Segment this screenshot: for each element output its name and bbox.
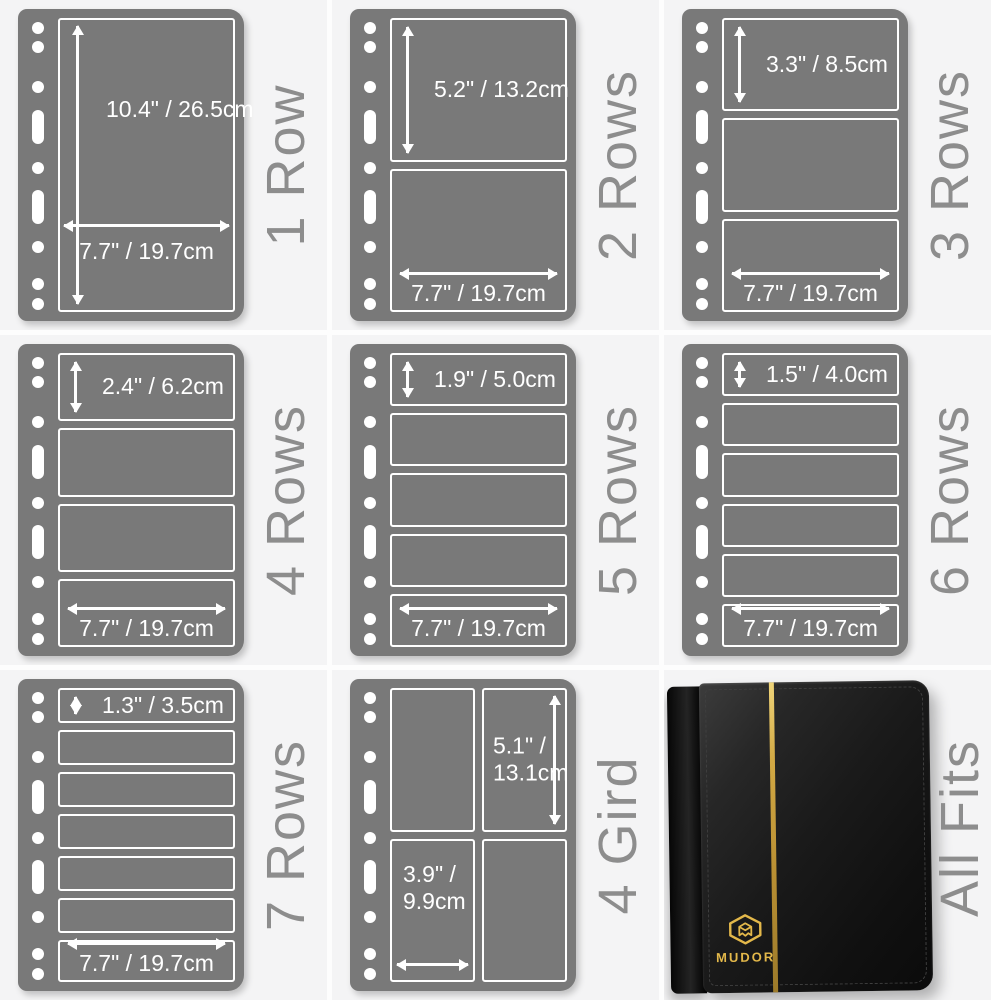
punch-hole <box>696 416 708 428</box>
page-width-measurement: 7.7" / 19.7cm <box>724 615 897 643</box>
horizontal-dimension-arrow-icon <box>732 607 889 610</box>
brand-text: MUDOR <box>711 949 781 965</box>
pocket-row: 1.3" / 3.5cm <box>58 688 235 723</box>
pocket-row: 7.7" / 19.7cm <box>58 579 235 647</box>
side-label-5-rows: 5 Rows <box>587 404 649 596</box>
punch-hole <box>364 241 376 253</box>
punch-hole <box>32 81 44 93</box>
punch-hole <box>32 860 44 894</box>
binder-holes-strip <box>682 344 720 656</box>
punch-hole <box>364 81 376 93</box>
row-height-measurement: 5.2" / 13.2cm <box>434 76 569 104</box>
punch-hole <box>364 711 376 723</box>
binder-holes-strip <box>350 9 388 321</box>
punch-hole <box>32 633 44 645</box>
pocket-row <box>722 403 899 446</box>
pocket-row: 7.7" / 19.7cm <box>390 594 567 647</box>
pocket-page: 2.4" / 6.2cm 7.7" / 19.7cm <box>18 344 244 656</box>
binder-holes-strip <box>682 9 720 321</box>
punch-hole <box>696 81 708 93</box>
punch-hole <box>364 110 376 144</box>
punch-hole <box>696 278 708 290</box>
punch-hole <box>364 613 376 625</box>
page-width-measurement: 7.7" / 19.7cm <box>60 950 233 978</box>
pocket-row <box>390 413 567 466</box>
vertical-dimension-arrow-icon <box>74 697 77 714</box>
row-height-measurement: 1.5" / 4.0cm <box>766 361 888 389</box>
panel-2-rows: 5.2" / 13.2cm 7.7" / 19.7cm 2 Rows <box>332 0 659 330</box>
pocket-row: 7.7" / 19.7cm <box>58 940 235 982</box>
pocket-row <box>390 534 567 587</box>
punch-hole <box>696 445 708 479</box>
pocket-cell: 3.9" / 9.9cm <box>390 839 475 983</box>
pocket-row <box>722 504 899 547</box>
side-label-4-grid: 4 Gird <box>587 755 649 914</box>
mudor-cube-icon <box>727 914 763 946</box>
punch-hole <box>32 22 44 34</box>
horizontal-dimension-arrow-icon <box>68 607 225 610</box>
panel-3-rows: 3.3" / 8.5cm 7.7" / 19.7cm 3 Rows <box>664 0 991 330</box>
punch-hole <box>696 576 708 588</box>
pocket-row: 5.2" / 13.2cm <box>390 18 567 162</box>
pocket-row <box>58 856 235 891</box>
punch-hole <box>364 22 376 34</box>
pocket-row <box>58 814 235 849</box>
punch-hole <box>364 445 376 479</box>
pocket-cell <box>390 688 475 832</box>
punch-hole <box>696 110 708 144</box>
punch-hole <box>364 376 376 388</box>
panel-4-grid: 5.1" / 13.1cm 3.9" / 9.9cm 4 Gird <box>332 670 659 1000</box>
side-label-2-rows: 2 Rows <box>587 69 649 261</box>
punch-hole <box>364 278 376 290</box>
row-height-measurement: 1.3" / 3.5cm <box>102 692 224 720</box>
pocket-page: 1.3" / 3.5cm 7.7" / 19.7cm <box>18 679 244 991</box>
punch-hole <box>364 298 376 310</box>
punch-hole <box>32 525 44 559</box>
punch-hole <box>32 110 44 144</box>
punch-hole <box>32 911 44 923</box>
panel-5-rows: 1.9" / 5.0cm 7.7" / 19.7cm 5 Rows <box>332 335 659 665</box>
side-label-3-rows: 3 Rows <box>919 69 981 261</box>
punch-hole <box>32 576 44 588</box>
punch-hole <box>696 357 708 369</box>
binder-holes-strip <box>350 344 388 656</box>
punch-hole <box>696 190 708 224</box>
pocket-row: 3.3" / 8.5cm <box>722 18 899 111</box>
punch-hole <box>364 751 376 763</box>
punch-hole <box>32 357 44 369</box>
punch-hole <box>696 633 708 645</box>
row-height-measurement: 1.9" / 5.0cm <box>434 366 556 394</box>
panel-1-row: 10.4" / 26.5cm 7.7" / 19.7cm 1 Row <box>0 0 327 330</box>
horizontal-dimension-arrow-icon <box>64 224 229 227</box>
pocket-cell <box>482 839 567 983</box>
mudor-binder: MUDOR <box>667 680 933 994</box>
punch-hole <box>364 416 376 428</box>
punch-hole <box>364 780 376 814</box>
punch-hole <box>364 41 376 53</box>
punch-hole <box>696 22 708 34</box>
pocket-row <box>58 730 235 765</box>
horizontal-dimension-arrow-icon <box>732 272 889 275</box>
side-label-6-rows: 6 Rows <box>919 404 981 596</box>
pocket-row <box>58 772 235 807</box>
punch-hole <box>364 525 376 559</box>
pocket-row: 1.5" / 4.0cm <box>722 353 899 396</box>
punch-hole <box>32 711 44 723</box>
page-width-measurement: 7.7" / 19.7cm <box>60 238 233 266</box>
punch-hole <box>32 376 44 388</box>
punch-hole <box>696 241 708 253</box>
punch-hole <box>32 278 44 290</box>
punch-hole <box>32 948 44 960</box>
pocket-row <box>58 428 235 496</box>
panel-7-rows: 1.3" / 3.5cm 7.7" / 19.7cm 7 Rows <box>0 670 327 1000</box>
panel-binder: MUDOR All Fits <box>664 670 991 1000</box>
cell-width-measurement: 3.9" / 9.9cm <box>403 861 466 916</box>
pocket-row <box>722 453 899 496</box>
binder-holes-strip <box>18 344 56 656</box>
horizontal-dimension-arrow-icon <box>68 942 225 945</box>
punch-hole <box>364 948 376 960</box>
pocket-page: 1.5" / 4.0cm 7.7" / 19.7cm <box>682 344 908 656</box>
side-label-all-fits: All Fits <box>929 739 991 917</box>
punch-hole <box>32 445 44 479</box>
panel-6-rows: 1.5" / 4.0cm 7.7" / 19.7cm 6 Rows <box>664 335 991 665</box>
pocket-row <box>390 473 567 526</box>
page-width-measurement: 7.7" / 19.7cm <box>392 615 565 643</box>
vertical-dimension-arrow-icon <box>738 27 741 102</box>
pocket-page: 10.4" / 26.5cm 7.7" / 19.7cm <box>18 9 244 321</box>
row-height-measurement: 10.4" / 26.5cm <box>106 96 254 124</box>
punch-hole <box>364 576 376 588</box>
pocket-page: 5.2" / 13.2cm 7.7" / 19.7cm <box>350 9 576 321</box>
pocket-row: 7.7" / 19.7cm <box>722 219 899 312</box>
punch-hole <box>364 692 376 704</box>
punch-hole <box>696 376 708 388</box>
pocket-row: 7.7" / 19.7cm <box>722 604 899 647</box>
punch-hole <box>32 692 44 704</box>
pocket-page: 3.3" / 8.5cm 7.7" / 19.7cm <box>682 9 908 321</box>
cell-height-measurement: 5.1" / 13.1cm <box>493 732 568 787</box>
punch-hole <box>364 190 376 224</box>
punch-hole <box>364 968 376 980</box>
punch-hole <box>32 968 44 980</box>
punch-hole <box>696 525 708 559</box>
punch-hole <box>32 162 44 174</box>
row-height-measurement: 2.4" / 6.2cm <box>102 373 224 401</box>
layout-grid: 10.4" / 26.5cm 7.7" / 19.7cm 1 Row 5.2" … <box>0 0 991 1000</box>
vertical-dimension-arrow-icon <box>406 27 409 153</box>
punch-hole <box>696 497 708 509</box>
punch-hole <box>364 860 376 894</box>
side-label-7-rows: 7 Rows <box>255 739 317 931</box>
binder-holes-strip <box>18 9 56 321</box>
binder-cover: MUDOR <box>699 680 933 993</box>
panel-4-rows: 2.4" / 6.2cm 7.7" / 19.7cm 4 Rows <box>0 335 327 665</box>
punch-hole <box>696 41 708 53</box>
vertical-dimension-arrow-icon <box>738 362 741 387</box>
pocket-page: 1.9" / 5.0cm 7.7" / 19.7cm <box>350 344 576 656</box>
punch-hole <box>364 497 376 509</box>
binder-holes-strip <box>350 679 388 991</box>
punch-hole <box>32 416 44 428</box>
punch-hole <box>364 911 376 923</box>
punch-hole <box>32 241 44 253</box>
punch-hole <box>32 190 44 224</box>
punch-hole <box>364 357 376 369</box>
punch-hole <box>32 613 44 625</box>
pocket-row: 10.4" / 26.5cm 7.7" / 19.7cm <box>58 18 235 312</box>
pocket-row <box>58 898 235 933</box>
punch-hole <box>696 613 708 625</box>
punch-hole <box>32 41 44 53</box>
row-height-measurement: 3.3" / 8.5cm <box>766 51 888 79</box>
horizontal-dimension-arrow-icon <box>400 607 557 610</box>
pocket-row <box>58 504 235 572</box>
punch-hole <box>32 780 44 814</box>
binder-holes-strip <box>18 679 56 991</box>
pocket-cell: 5.1" / 13.1cm <box>482 688 567 832</box>
vertical-dimension-arrow-icon <box>406 362 409 397</box>
punch-hole <box>32 832 44 844</box>
pocket-row <box>722 118 899 211</box>
punch-hole <box>696 298 708 310</box>
punch-hole <box>364 633 376 645</box>
punch-hole <box>364 162 376 174</box>
vertical-dimension-arrow-icon <box>74 362 77 412</box>
page-width-measurement: 7.7" / 19.7cm <box>60 615 233 643</box>
horizontal-dimension-arrow-icon <box>400 272 557 275</box>
page-width-measurement: 7.7" / 19.7cm <box>392 280 565 308</box>
pocket-row: 2.4" / 6.2cm <box>58 353 235 421</box>
pocket-page: 5.1" / 13.1cm 3.9" / 9.9cm <box>350 679 576 991</box>
punch-hole <box>32 298 44 310</box>
side-label-1-row: 1 Row <box>255 83 317 246</box>
brand-logo: MUDOR <box>710 913 781 965</box>
side-label-4-rows: 4 Rows <box>255 404 317 596</box>
page-width-measurement: 7.7" / 19.7cm <box>724 280 897 308</box>
pocket-row: 7.7" / 19.7cm <box>390 169 567 313</box>
punch-hole <box>32 497 44 509</box>
punch-hole <box>364 832 376 844</box>
punch-hole <box>696 162 708 174</box>
horizontal-dimension-arrow-icon <box>397 963 468 966</box>
pocket-row <box>722 554 899 597</box>
punch-hole <box>32 751 44 763</box>
pocket-row: 1.9" / 5.0cm <box>390 353 567 406</box>
